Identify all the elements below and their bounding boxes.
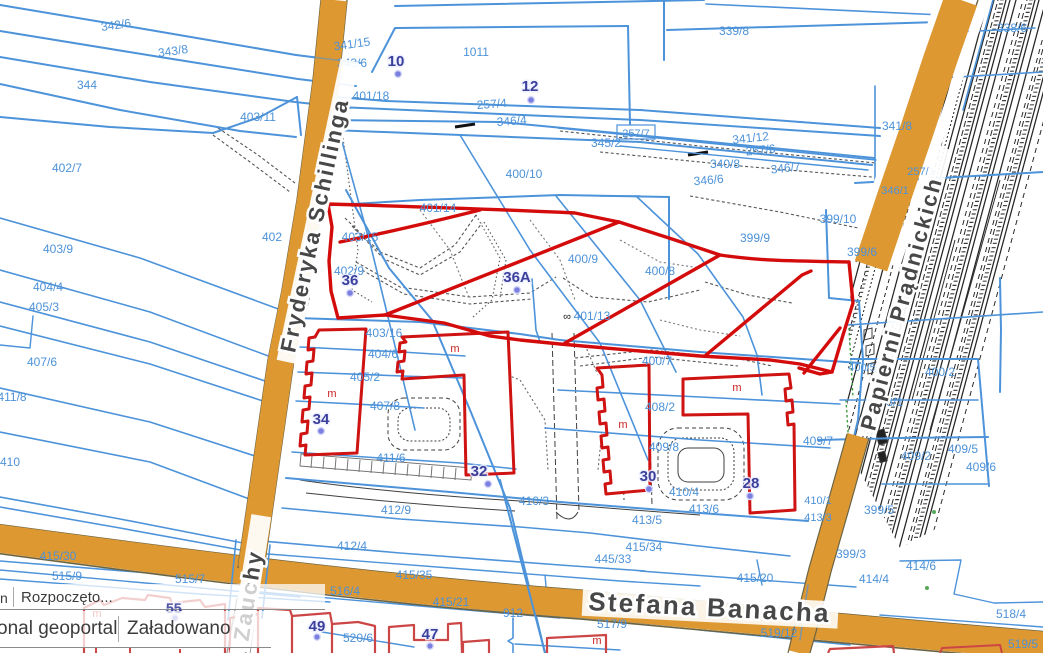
- svg-text:401/13: 401/13: [574, 309, 611, 323]
- svg-text:32: 32: [471, 463, 488, 480]
- svg-text:415/30: 415/30: [40, 549, 77, 563]
- svg-text:36A: 36A: [503, 269, 531, 286]
- svg-text:400/10: 400/10: [506, 167, 543, 181]
- svg-text:409/8: 409/8: [649, 440, 679, 454]
- svg-text:403/16: 403/16: [366, 326, 403, 340]
- svg-text:345/2: 345/2: [591, 136, 621, 150]
- svg-text:402/7: 402/7: [52, 161, 82, 175]
- svg-text:49: 49: [309, 618, 326, 635]
- svg-text:28: 28: [743, 475, 760, 492]
- svg-text:338/6: 338/6: [997, 21, 1027, 35]
- svg-text:912: 912: [503, 606, 523, 620]
- svg-text:47: 47: [422, 626, 439, 643]
- svg-text:34: 34: [313, 411, 330, 428]
- svg-text:445/33: 445/33: [595, 552, 632, 566]
- svg-text:346/4: 346/4: [496, 113, 527, 129]
- svg-text:257/4: 257/4: [476, 96, 507, 112]
- svg-text:403/9: 403/9: [43, 242, 73, 256]
- svg-text:36: 36: [342, 272, 359, 289]
- svg-text:412/4: 412/4: [337, 539, 367, 553]
- svg-text:415/35: 415/35: [396, 568, 433, 582]
- svg-text:414/6: 414/6: [906, 559, 936, 573]
- svg-text:409/5: 409/5: [948, 442, 978, 456]
- svg-text:30: 30: [640, 468, 657, 485]
- svg-text:413/5: 413/5: [632, 513, 662, 527]
- svg-text:400/8: 400/8: [645, 264, 675, 278]
- svg-text:m: m: [592, 635, 601, 647]
- svg-text:399/10: 399/10: [820, 212, 857, 226]
- svg-text:m: m: [450, 343, 459, 355]
- svg-text:341/8: 341/8: [882, 119, 912, 133]
- svg-text:1011: 1011: [463, 45, 489, 59]
- svg-text:346/6: 346/6: [693, 172, 724, 189]
- svg-text:399/6: 399/6: [847, 245, 877, 259]
- svg-text:400/2: 400/2: [925, 365, 955, 379]
- svg-text:415/20: 415/20: [737, 571, 774, 585]
- svg-text:404/4: 404/4: [33, 280, 63, 294]
- svg-text:411/6: 411/6: [376, 451, 405, 465]
- svg-text:400/7: 400/7: [642, 354, 672, 368]
- svg-text:408/2: 408/2: [645, 400, 675, 414]
- svg-text:413/6: 413/6: [689, 502, 719, 516]
- svg-text:412/9: 412/9: [381, 503, 411, 517]
- svg-text:346/1: 346/1: [881, 185, 909, 197]
- svg-text:413/3: 413/3: [804, 512, 832, 524]
- svg-text:399/5: 399/5: [864, 503, 894, 517]
- svg-text:m: m: [618, 419, 627, 431]
- svg-text:410/4: 410/4: [669, 485, 699, 499]
- svg-text:401/18: 401/18: [353, 89, 390, 103]
- svg-text:407/8: 407/8: [370, 399, 400, 413]
- svg-text:410/3: 410/3: [519, 494, 549, 508]
- svg-text:401/14: 401/14: [420, 201, 457, 215]
- svg-text:409/2: 409/2: [901, 449, 931, 463]
- svg-text:403/15: 403/15: [342, 230, 379, 244]
- svg-text:399/9: 399/9: [740, 231, 770, 245]
- svg-text:403/11: 403/11: [240, 110, 276, 124]
- svg-text:518/4: 518/4: [996, 607, 1026, 621]
- svg-text:516/4: 516/4: [330, 584, 360, 598]
- svg-text:410/1: 410/1: [804, 495, 832, 507]
- svg-text:405/2: 405/2: [350, 370, 380, 384]
- svg-text:12: 12: [522, 78, 539, 95]
- svg-text:399/3: 399/3: [836, 547, 866, 561]
- svg-text:405/3: 405/3: [29, 300, 59, 314]
- svg-text:410: 410: [0, 455, 20, 469]
- svg-text:519/5: 519/5: [1008, 637, 1038, 651]
- svg-text:400/9: 400/9: [568, 252, 598, 266]
- svg-text:344: 344: [77, 78, 97, 92]
- svg-text:404/6: 404/6: [368, 347, 398, 361]
- svg-text:402: 402: [262, 230, 282, 244]
- svg-text:415/21: 415/21: [433, 595, 470, 609]
- svg-text:339/8: 339/8: [719, 24, 749, 38]
- svg-text:257/7: 257/7: [622, 128, 650, 140]
- svg-text:515/9: 515/9: [52, 569, 82, 583]
- svg-text:409/7: 409/7: [803, 434, 833, 448]
- svg-text:407/6: 407/6: [27, 355, 57, 369]
- svg-text:414/4: 414/4: [859, 572, 889, 586]
- svg-text:∞: ∞: [563, 311, 571, 323]
- svg-text:340/8: 340/8: [710, 157, 740, 171]
- svg-text:520/6: 520/6: [343, 631, 373, 645]
- svg-text:519/12: 519/12: [761, 626, 798, 640]
- svg-text:m: m: [327, 388, 336, 400]
- svg-text:517/9: 517/9: [597, 617, 627, 631]
- svg-text:m: m: [732, 382, 741, 394]
- svg-text:411/8: 411/8: [0, 390, 27, 404]
- svg-text:10: 10: [388, 53, 405, 70]
- svg-text:409/6: 409/6: [966, 460, 996, 474]
